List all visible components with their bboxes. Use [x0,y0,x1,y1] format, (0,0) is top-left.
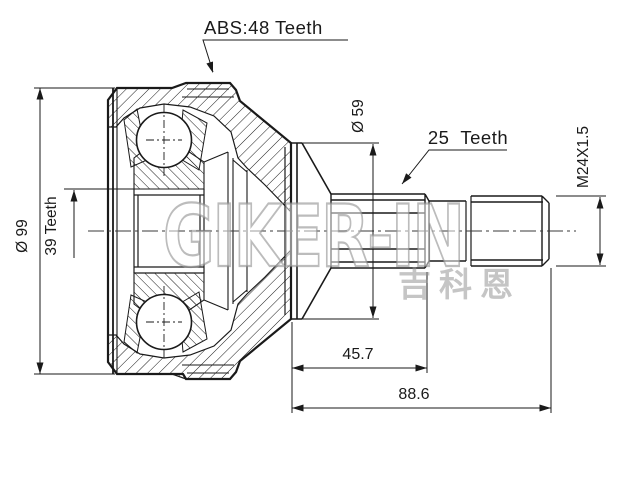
technical-drawing-cv-joint: ABS:48 Teeth 25 Teeth 45.7 88.6 Ø 99 39 … [0,0,640,480]
watermark-cjk-text: 吉科恩 [398,265,521,304]
dim-boot-diameter: Ø 59 [350,99,367,133]
dim-spline-shaft-label: 25 Teeth [428,127,508,148]
dim-length-88-6: 88.6 [398,386,429,403]
dim-thread-spec: M24X1.5 [575,126,592,188]
dim-hub-spline: 39 Teeth [43,196,60,255]
dim-length-45-7: 45.7 [342,346,373,363]
dim-abs-teeth-label: ABS:48 Teeth [204,17,323,38]
dim-outer-diameter: Ø 99 [14,219,31,253]
